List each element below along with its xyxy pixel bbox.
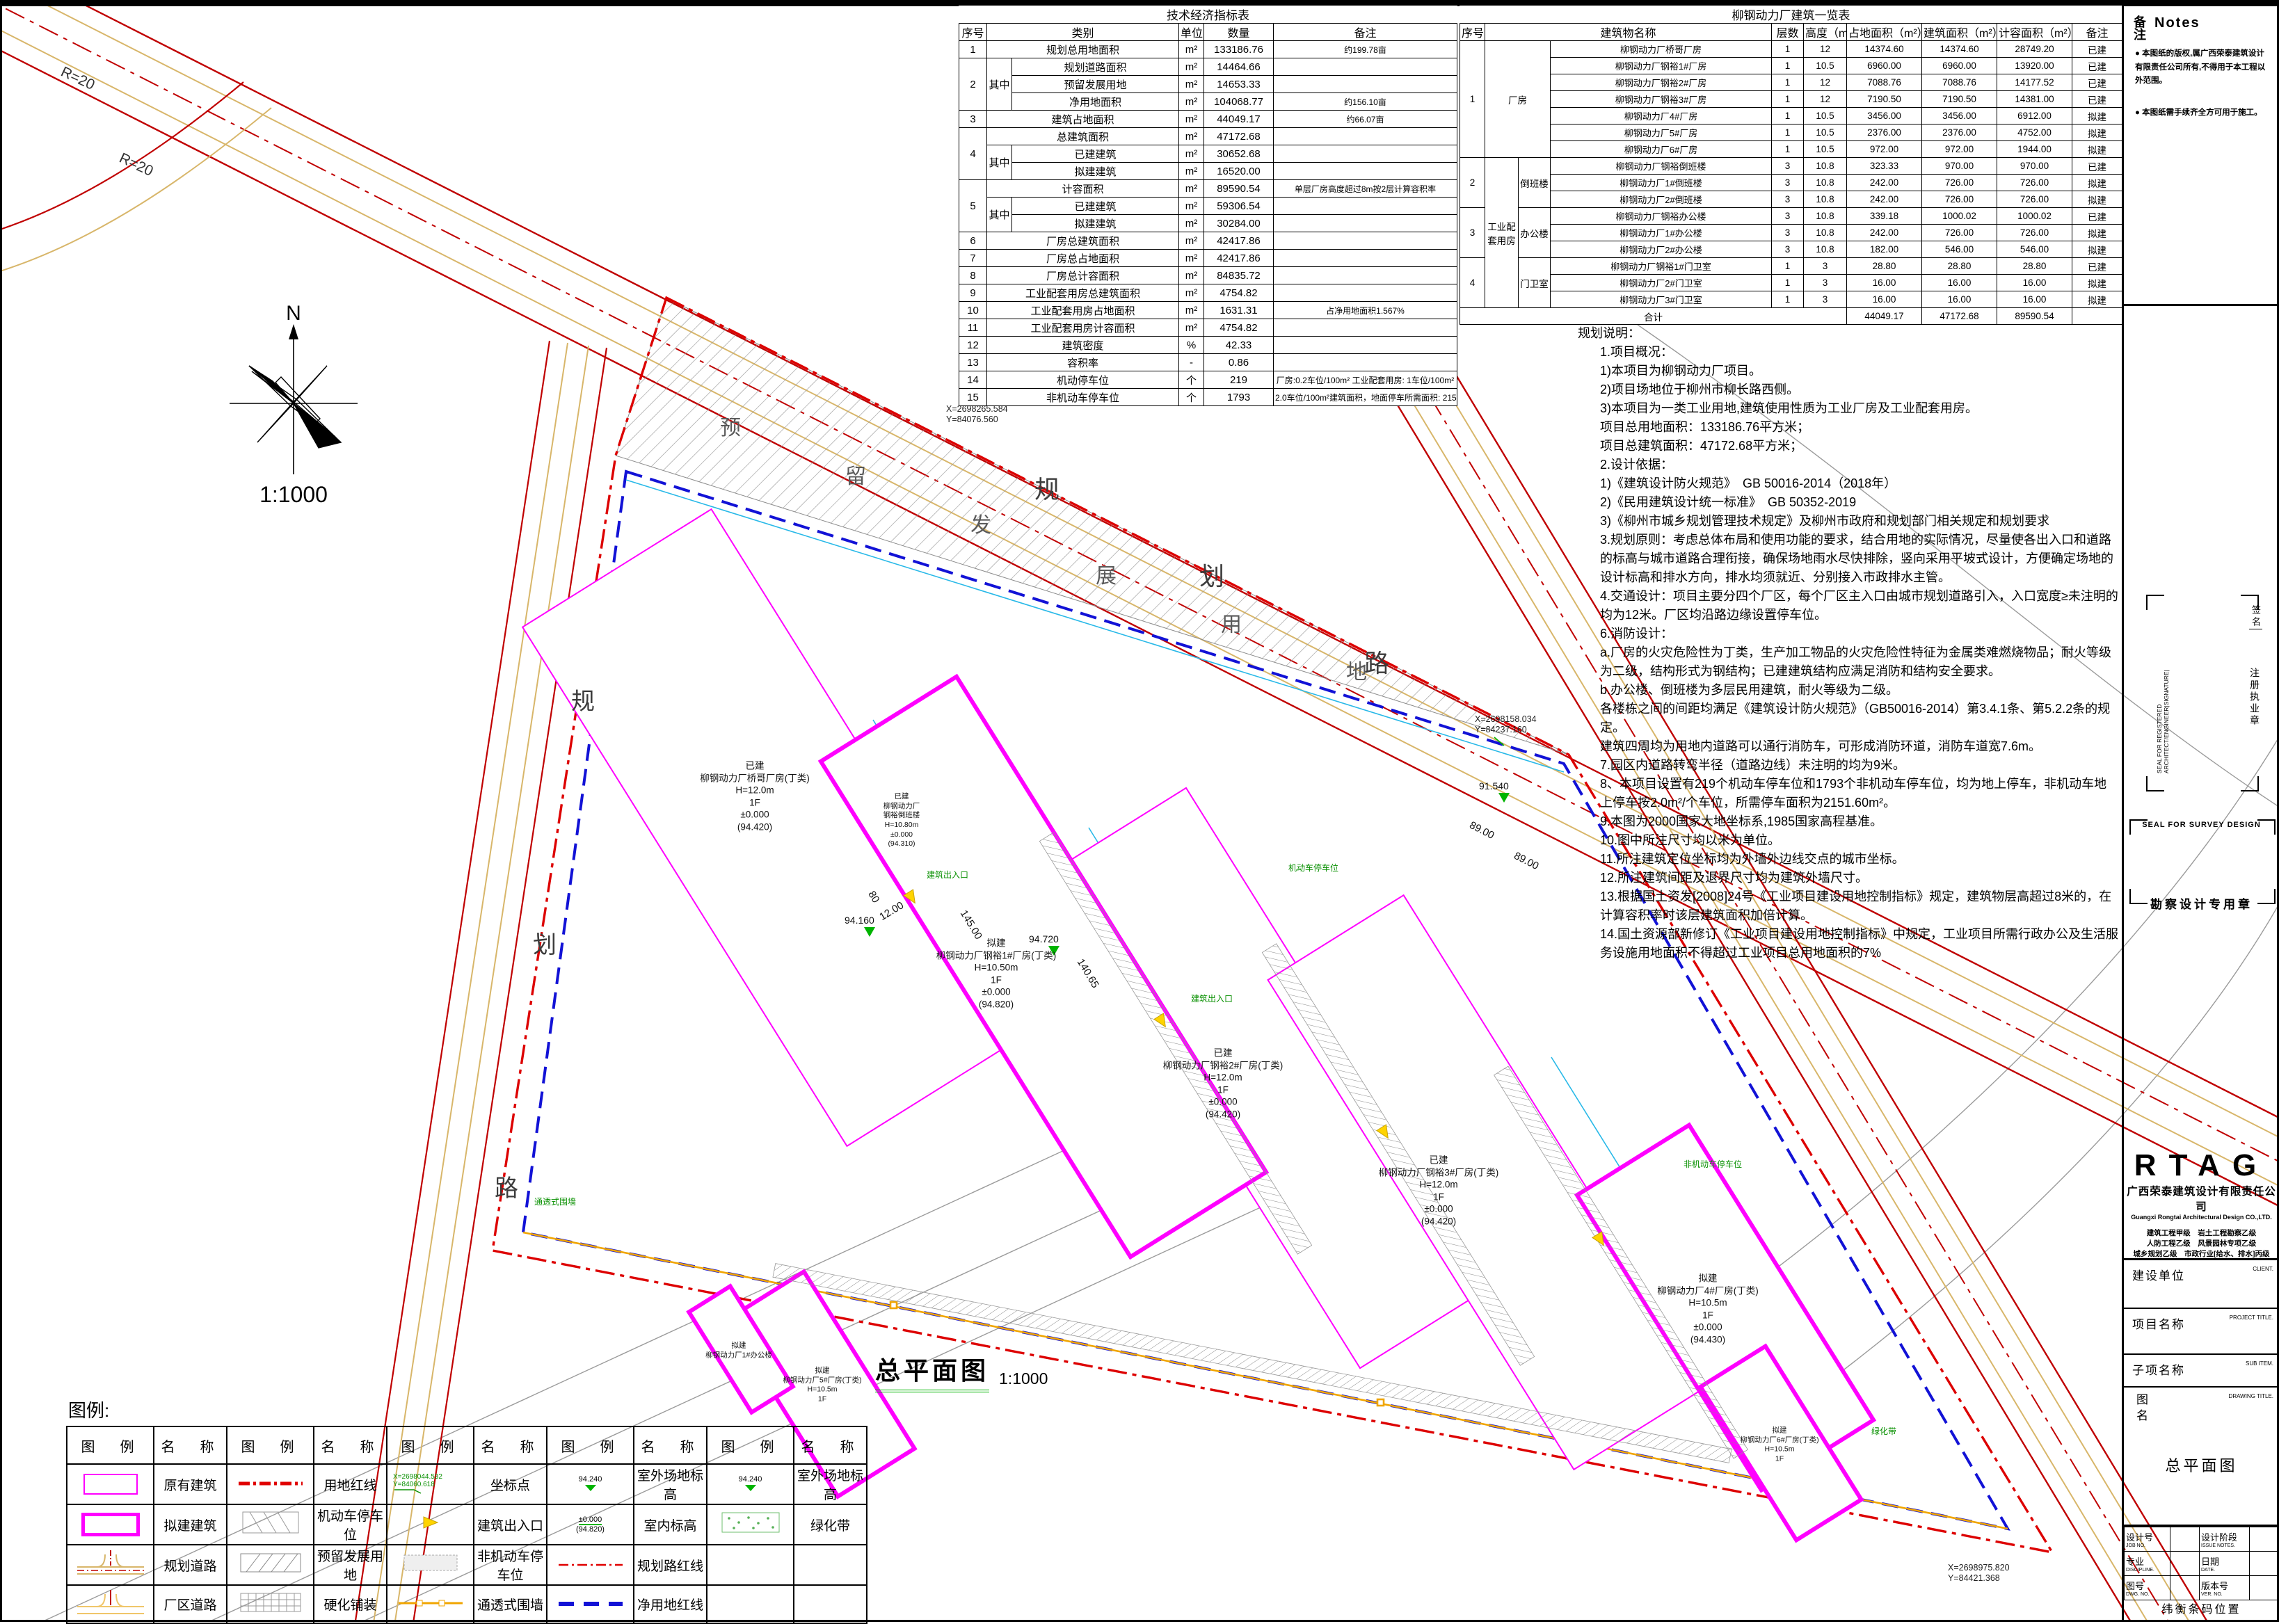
drawing-info-table: 设计号JOB NO. 设计阶段ISSUE NOTES. 专业DISCIPLINE… [2124, 1527, 2279, 1600]
table-row: 6厂房总建筑面积m²42417.86 [959, 232, 1457, 250]
svg-text:路: 路 [1364, 649, 1389, 677]
svg-text:用: 用 [1221, 613, 1242, 636]
planning-notes: 规划说明： 1.项目概况： 1)本项目为柳钢动力厂项目。 2)项目场地位于柳州市… [1578, 324, 2119, 963]
note-item: ● 本图纸需手续齐全方可用于施工。 [2124, 88, 2279, 120]
building-label-office1: 拟建柳钢动力厂1#办公楼 [705, 1341, 772, 1360]
table-row: 3建筑占地面积m²44049.17约66.07亩 [959, 111, 1457, 128]
drawing-sheet: { "sheet": { "drawing_title": "总平面图", "d… [0, 0, 2279, 1622]
legend-coordinate-icon: X=2698044.532Y=84060.618 [387, 1464, 474, 1504]
subitem-field: 子项名称 SUB ITEM. [2124, 1355, 2279, 1388]
table-row: 13容积率-0.86 [959, 354, 1457, 371]
table-row: 1规划总用地面积m²133186.76约199.78亩 [959, 41, 1457, 58]
svg-text:Y=84421.368: Y=84421.368 [1948, 1573, 2000, 1583]
legend-greenbelt-icon [707, 1504, 794, 1545]
building-list-table: 柳钢动力厂建筑一览表 序号 建筑物名称 层数 高度（m） 占地面积（m²） 建筑… [1460, 6, 2122, 325]
road-name-left: 规 划 路 [495, 689, 595, 1202]
table-row: 1厂房柳钢动力厂桥哥厂房11214374.6014374.6028749.20已… [1460, 41, 2122, 58]
company-logo: RTAG [2124, 1145, 2279, 1183]
seal-registered-cn: 注册执业章 [2248, 668, 2262, 727]
svg-text:94.160: 94.160 [845, 915, 874, 926]
table1-title: 技术经济指标表 [959, 6, 1457, 24]
legend-plant-road-icon [67, 1585, 154, 1623]
table-row: 7厂房总占地面积m²42417.86 [959, 250, 1457, 267]
table-row: 4门卫室柳钢动力厂钢裕1#门卫室1328.8028.8028.80已建 [1460, 258, 2122, 275]
legend-indoor-level-icon: ±0.000 (94.820) [547, 1504, 634, 1545]
legend-existing-building-icon [67, 1464, 154, 1504]
building-label-no4: 拟建柳钢动力厂4#厂房(丁类)H=10.5m1F±0.000(94.430) [1657, 1272, 1759, 1345]
table-row: 4总建筑面积m²47172.68 [959, 128, 1457, 145]
table-row: 拟建建筑m²16520.00 [959, 163, 1457, 180]
client-field: 建设单位 CLIENT. [2124, 1260, 2279, 1309]
svg-text:规: 规 [571, 689, 595, 715]
table-row: 10工业配套用房占地面积m²1631.31占净用地面积1.567% [959, 302, 1457, 319]
t1-h-qty: 数量 [1204, 24, 1274, 41]
t2-h-occ: 占地面积（m²） [1847, 24, 1922, 41]
svg-text:Y=84237.160: Y=84237.160 [1475, 725, 1527, 734]
t2-h-name: 建筑物名称 [1485, 24, 1772, 41]
company-block: RTAG 广西荣泰建筑设计有限责任公司 Guangxi Rongtai Arch… [2124, 1145, 2279, 1260]
t2-h-gfa: 建筑面积（m²） [1922, 24, 1997, 41]
company-credential: 建筑工程甲级 岩土工程勘察乙级 [2124, 1221, 2279, 1238]
t2-h-no: 序号 [1460, 24, 1485, 41]
technical-indicator-table: 技术经济指标表 序号 类别 单位 数量 备注 1规划总用地面积m²133186.… [959, 6, 1457, 406]
svg-text:X=2698975.820: X=2698975.820 [1948, 1563, 2010, 1573]
svg-text:划: 划 [533, 932, 557, 958]
table-row: 拟建建筑m²30284.00 [959, 215, 1457, 232]
table-row: 柳钢动力厂钢裕3#厂房1127190.507190.5014381.00已建 [1460, 91, 2122, 108]
table-row: 14机动停车位个219厂房:0.2车位/100m² 工业配套用房: 1车位/10… [959, 371, 1457, 389]
table-row: 其中已建建筑m²59306.54 [959, 198, 1457, 215]
svg-text:机动车停车位: 机动车停车位 [1288, 862, 1338, 873]
company-name-cn: 广西荣泰建筑设计有限责任公司 [2124, 1183, 2279, 1214]
t1-h-remark: 备注 [1274, 24, 1457, 41]
table-row: 11工业配套用房计容面积m²4754.82 [959, 319, 1457, 337]
note-item: ● 本图纸的版权,属广西荣泰建筑设计有限责任公司所有,不得用于本工程以外范围。 [2124, 40, 2279, 88]
table-row: 柳钢动力厂1#办公楼310.8242.00726.00726.00拟建 [1460, 225, 2122, 241]
svg-text:89.00: 89.00 [1467, 819, 1496, 842]
legend-reserved-land-icon [227, 1545, 314, 1585]
table-row: 其中已建建筑m²30652.68 [959, 145, 1457, 163]
table-row: 柳钢动力厂钢裕1#厂房110.56960.006960.0013920.00已建 [1460, 58, 2122, 74]
building-label-qiaoge: 已建柳钢动力厂桥哥厂房(丁类)H=12.0m1F±0.000(94.420) [700, 759, 810, 833]
seal-registered-en: SEAL FOR REGISTERED ARCHITECT/ENGINEER|S… [2156, 606, 2166, 773]
table-row: 2其中规划道路面积m²14464.66 [959, 58, 1457, 76]
table-row: 柳钢动力厂2#门卫室1316.0016.0016.00拟建 [1460, 275, 2122, 291]
svg-text:Y=84076.560: Y=84076.560 [946, 415, 998, 424]
planning-notes-title: 规划说明： [1578, 324, 2119, 343]
plan-title-scale: 1:1000 [999, 1369, 1048, 1392]
barcode-strip: 纬衡条码位置 [2124, 1600, 2279, 1616]
svg-text:规: 规 [1034, 475, 1059, 504]
plan-title: 总平面图 1:1000 [875, 1351, 1048, 1392]
table-row: 柳钢动力厂钢裕2#厂房1127088.767088.7614177.52已建 [1460, 74, 2122, 91]
registered-seal-zone: SEAL FOR REGISTERED ARCHITECT/ENGINEER|S… [2124, 306, 2279, 928]
table-row: 柳钢动力厂3#门卫室1316.0016.0016.00拟建 [1460, 291, 2122, 308]
svg-text:地: 地 [1346, 661, 1367, 684]
table-row: 柳钢动力厂4#厂房110.53456.003456.006912.00拟建 [1460, 108, 2122, 124]
table-row: 3办公楼柳钢动力厂钢裕办公楼310.8339.181000.021000.02已… [1460, 208, 2122, 225]
legend-parking-icon [227, 1504, 314, 1545]
legend-bike-parking-icon [387, 1545, 474, 1585]
drawing-name-field: 图名 DRAWING TITLE. 总平面图 [2124, 1388, 2279, 1527]
building-label-no6: 拟建柳钢动力厂6#厂房(丁类)H=10.5m1F [1740, 1426, 1818, 1465]
svg-text:绿化带: 绿化带 [1871, 1426, 1896, 1436]
legend-planning-road-redline-icon [547, 1545, 634, 1585]
svg-text:通透式围墙: 通透式围墙 [534, 1197, 576, 1207]
company-name-en: Guangxi Rongtai Architectural Design CO.… [2124, 1214, 2279, 1221]
legend-paving-icon [227, 1585, 314, 1623]
table-row: 柳钢动力厂2#倒班楼310.8242.00726.00726.00拟建 [1460, 191, 2122, 208]
table-row: 12建筑密度%42.33 [959, 337, 1457, 354]
legend-table: 图 例名 称 图 例名 称 图 例名 称 图 例名 称 图 例名 称 原有建筑 … [66, 1426, 867, 1624]
plan-title-text: 总平面图 [875, 1351, 989, 1392]
table-row: 柳钢动力厂1#倒班楼310.8242.00726.00726.00拟建 [1460, 175, 2122, 191]
table-total-row: 合计44049.1747172.6889590.54 [1460, 308, 2122, 325]
t2-h-floors: 层数 [1772, 24, 1804, 41]
north-label: N [286, 302, 301, 325]
project-title-field: 项目名称 PROJECT TITLE. [2124, 1309, 2279, 1355]
legend-entrance-icon [387, 1504, 474, 1545]
table-row: 预留发展用地m²14653.33 [959, 76, 1457, 93]
building-label-daobanlou: 已建柳钢动力厂钢裕倒班楼H=10.80m±0.000(94.310) [883, 792, 920, 849]
t2-h-remark: 备注 [2072, 24, 2122, 41]
t1-h-unit: 单位 [1179, 24, 1204, 41]
table-row: 9工业配套用房总建筑面积m²4754.82 [959, 284, 1457, 302]
notes-en-label: Notes [2154, 15, 2200, 40]
t1-h-cat: 类别 [987, 24, 1179, 41]
legend-proposed-building-icon [67, 1504, 154, 1545]
svg-text:路: 路 [495, 1175, 518, 1202]
svg-text:91.540: 91.540 [1479, 780, 1509, 791]
north-compass: N 1:1000 [209, 299, 383, 508]
legend-fence-icon [387, 1585, 474, 1623]
svg-text:发: 发 [970, 514, 991, 537]
t2-h-height: 高度（m） [1804, 24, 1847, 41]
svg-text:建筑出入口: 建筑出入口 [927, 869, 968, 880]
svg-text:X=2698158.034: X=2698158.034 [1475, 714, 1537, 724]
sign-label: 签名 [2249, 605, 2262, 629]
table-row: 柳钢动力厂6#厂房110.5972.00972.001944.00拟建 [1460, 141, 2122, 158]
legend-net-land-line-icon [547, 1585, 634, 1623]
wind-rose-icon [249, 366, 341, 448]
legend-outdoor-level-icon: 94.240 [547, 1464, 634, 1504]
seal-survey-cn: 勘察设计专用章 [2124, 894, 2279, 912]
svg-text:R=20: R=20 [117, 150, 156, 179]
building-label-gy2: 已建柳钢动力厂钢裕2#厂房(丁类)H=12.0m1F±0.000(94.420) [1163, 1047, 1284, 1120]
svg-text:展: 展 [1096, 565, 1117, 588]
legend-title: 图例: [68, 1397, 109, 1422]
table-row: 柳钢动力厂2#办公楼310.8182.00546.00546.00拟建 [1460, 241, 2122, 258]
legend-outdoor-level-icon: 94.240 [707, 1464, 794, 1504]
svg-text:留: 留 [845, 465, 866, 488]
svg-text:划: 划 [1199, 562, 1224, 590]
table-row: 8厂房总计容面积m²84835.72 [959, 267, 1457, 284]
building-label-no5: 拟建柳钢动力厂5#厂房(丁类)H=10.5m1F [783, 1367, 861, 1405]
t1-h-no: 序号 [959, 24, 987, 41]
company-credential: 人防工程乙级 风景园林专项乙级 [2124, 1238, 2279, 1248]
table-row: 柳钢动力厂5#厂房110.52376.002376.004752.00拟建 [1460, 124, 2122, 141]
notes-panel: 备注 Notes ● 本图纸的版权,属广西荣泰建筑设计有限责任公司所有,不得用于… [2124, 6, 2279, 306]
notes-cn-label: 备注 [2134, 15, 2148, 40]
svg-text:89.00: 89.00 [1512, 850, 1540, 872]
table-row: 2工业配套用房倒班楼柳钢动力厂钢裕倒班楼310.8323.33970.00970… [1460, 158, 2122, 175]
building-label-gy1: 拟建柳钢动力厂钢裕1#厂房(丁类)H=10.50m1F±0.000(94.820… [936, 937, 1057, 1010]
svg-text:建筑出入口: 建筑出入口 [1191, 993, 1233, 1004]
legend-red-line-icon [227, 1464, 314, 1504]
compass-scale: 1:1000 [259, 482, 328, 507]
table-row: 15非机动车停车位个17932.0车位/100m²建筑面积，地面停车所需面积: … [959, 389, 1457, 406]
table2-title: 柳钢动力厂建筑一览表 [1460, 6, 2122, 24]
title-block-column: 备注 Notes ● 本图纸的版权,属广西荣泰建筑设计有限责任公司所有,不得用于… [2122, 0, 2279, 1622]
legend-planned-road-icon [67, 1545, 154, 1585]
building-label-gy3: 已建柳钢动力厂钢裕3#厂房(丁类)H=12.0m1F±0.000(94.420) [1379, 1154, 1499, 1227]
company-credential: 城乡规划乙级 市政行业[给水、排水]丙级 [2124, 1248, 2279, 1259]
table-row: 净用地面积m²104068.77约156.10亩 [959, 93, 1457, 111]
svg-text:非机动车停车位: 非机动车停车位 [1684, 1159, 1742, 1169]
table-row: 5计容面积m²89590.54单层厂房高度超过8m按2层计算容积率 [959, 180, 1457, 198]
t2-h-far: 计容面积（m²） [1997, 24, 2072, 41]
svg-text:预: 预 [720, 417, 741, 440]
